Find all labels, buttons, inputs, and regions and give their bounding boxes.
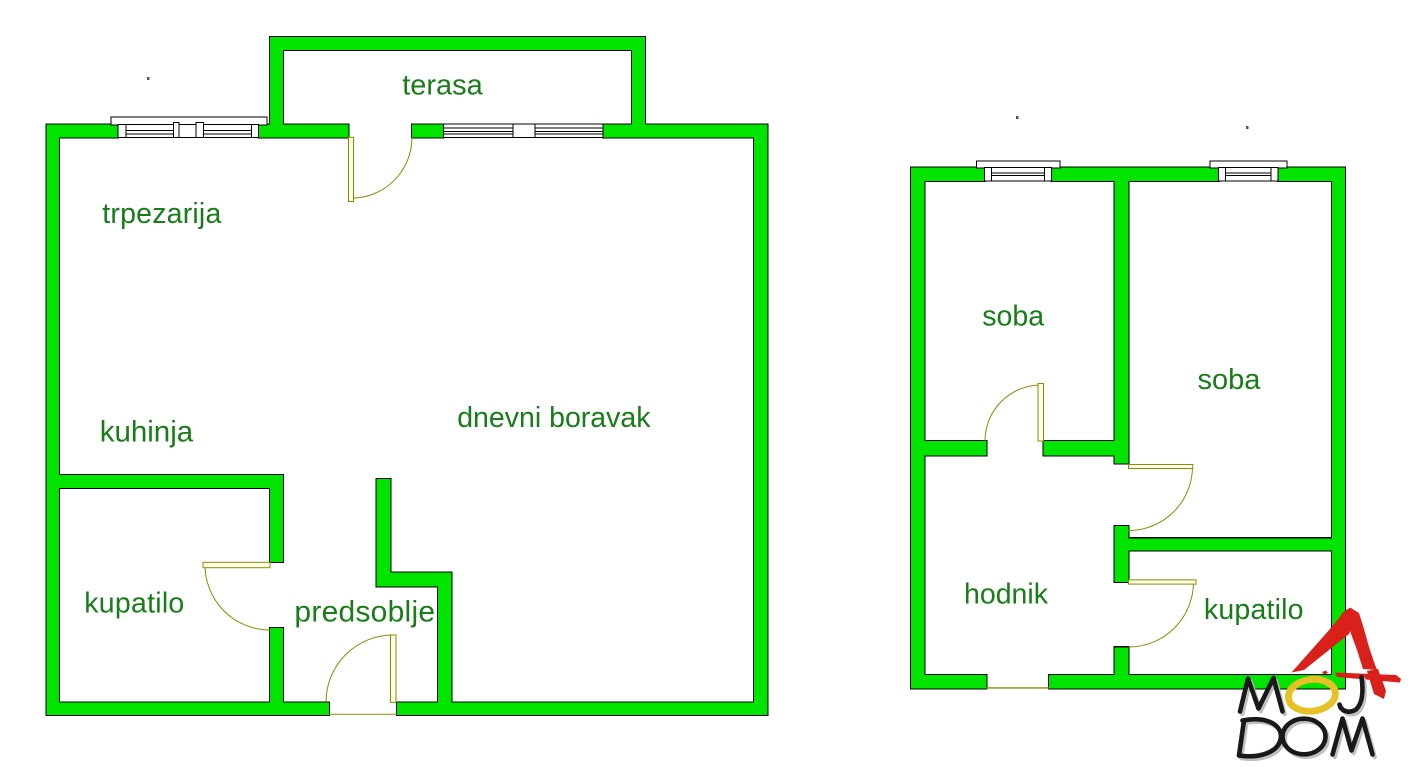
svg-text:hodnik: hodnik [964, 579, 1049, 611]
svg-text:kuhinja: kuhinja [100, 416, 194, 449]
svg-text:soba: soba [1198, 364, 1262, 396]
svg-text:dnevni boravak: dnevni boravak [457, 402, 651, 434]
svg-text:kupatilo: kupatilo [84, 588, 184, 620]
svg-text:predsoblje: predsoblje [294, 595, 435, 628]
svg-text:soba: soba [982, 301, 1044, 333]
svg-text:terasa: terasa [402, 70, 483, 102]
svg-text:kupatilo: kupatilo [1204, 594, 1304, 626]
svg-text:trpezarija: trpezarija [102, 198, 221, 230]
